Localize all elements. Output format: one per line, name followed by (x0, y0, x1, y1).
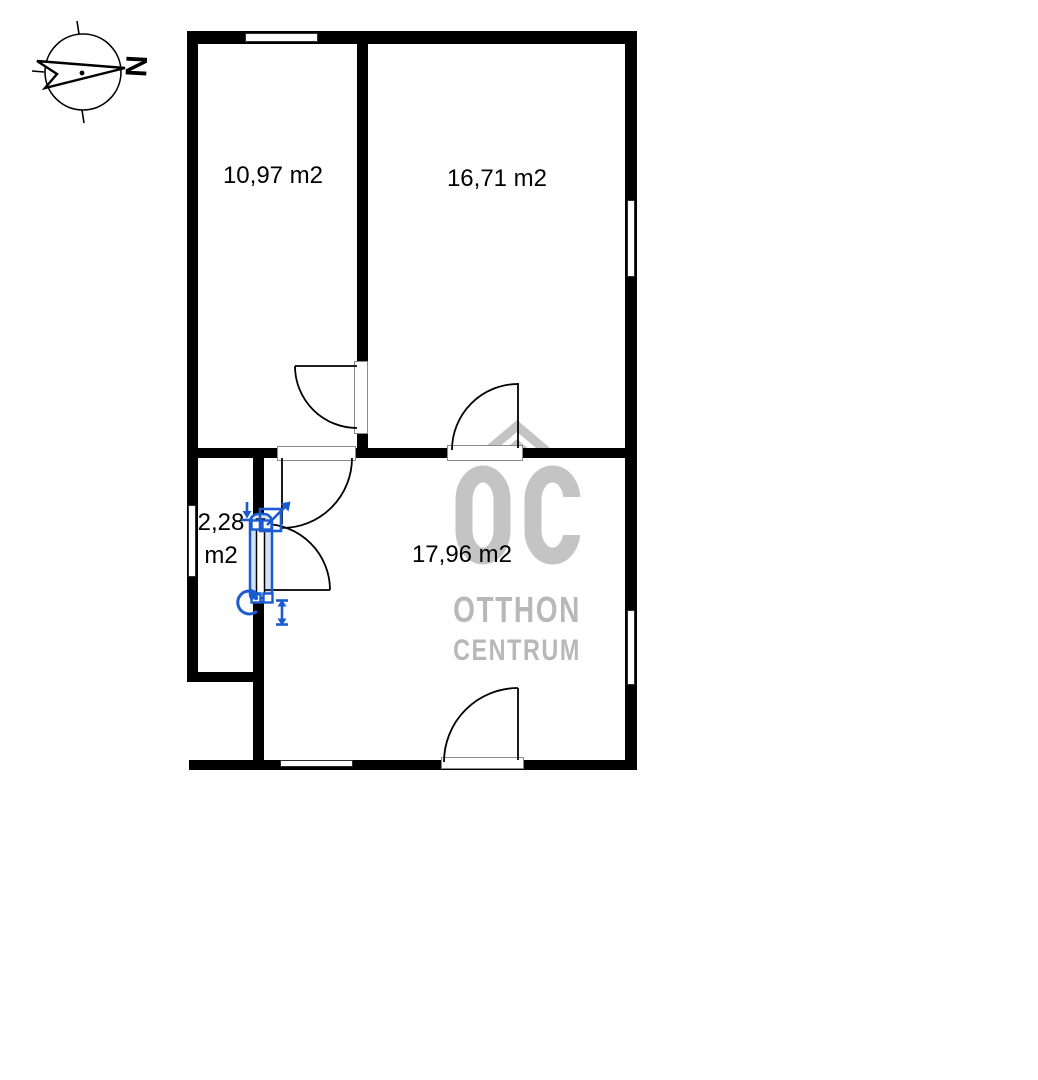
door-swing-selected-door[interactable] (264, 524, 330, 590)
door-swing-room1-hall[interactable] (282, 458, 352, 528)
door-frame-room2-room4[interactable] (447, 445, 523, 461)
door-swing-bottom-entry[interactable] (444, 688, 518, 762)
room3-area-line1: 2,28 (198, 509, 245, 536)
watermark: OTTHON CENTRUM (0, 0, 1038, 1080)
floor-plan-canvas: OTTHON CENTRUM N (0, 0, 1038, 1080)
wall-hall-vertical (253, 448, 264, 770)
door-swing-room1-room2[interactable] (295, 366, 357, 428)
selection-handle-bottom-right[interactable] (264, 594, 273, 603)
watermark-name-line2: CENTRUM (453, 633, 581, 666)
window-right-lower (627, 610, 635, 685)
door-frame-bottom-entry[interactable] (441, 757, 524, 769)
window-right-upper (627, 200, 635, 277)
wall-left (187, 31, 198, 682)
watermark-name-line1: OTTHON (453, 590, 581, 630)
door-swing-room2-room4[interactable] (452, 383, 518, 450)
door-frame-room1-hall[interactable] (277, 446, 356, 461)
room3-area-line2: m2 (204, 542, 237, 569)
window-bottom (280, 760, 353, 767)
door-frame-room1-room2[interactable] (354, 361, 368, 434)
compass-rose-icon: N (32, 21, 153, 123)
compass-needle (37, 61, 125, 88)
resize-vertical-icon[interactable] (276, 600, 288, 626)
room1-area-label: 10,97 m2 (203, 162, 343, 190)
wall-hall-bottom (187, 672, 258, 682)
window-top (245, 33, 318, 42)
room4-area-label: 17,96 m2 (392, 541, 532, 569)
room2-area-label: 16,71 m2 (427, 165, 567, 193)
compass-north-letter: N (119, 54, 153, 77)
